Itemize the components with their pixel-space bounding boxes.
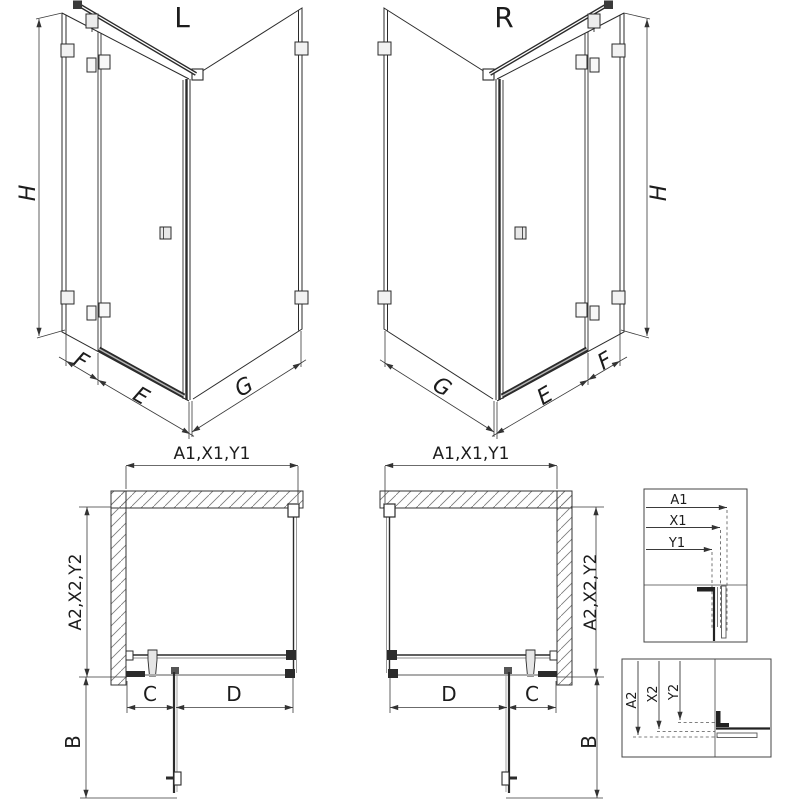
detail-y1-label: Y1 [668,536,685,551]
plan-left-depth-label: A2,X2,Y2 [66,554,86,631]
plan-left-side-wall [111,491,126,685]
plan-left-door-label: D [226,682,241,706]
plan-left-width-label: A1,X1,Y1 [174,444,251,464]
dim-label-height-left: H [16,185,41,202]
variant-label-right: R [494,1,513,34]
detail-a1-label: A1 [670,493,687,508]
plan-right-projection-label: B [577,735,601,749]
plan-left-fixed-label: C [143,682,157,706]
plan-right-top-wall [380,491,572,508]
dim-label-fixed-right: F [594,347,618,375]
drawing-canvas: L H F E G R H F E G A1,X1,Y1 A2,X2,Y2 C … [0,0,800,800]
plan-left-top-wall [111,491,303,508]
plan-right-side-wall [557,491,572,685]
dim-label-fixed-left: F [69,347,93,375]
variant-label-left: L [174,1,190,34]
wall-sections [111,491,572,685]
shower-enclosure-technical-drawing: L H F E G R H F E G A1,X1,Y1 A2,X2,Y2 C … [0,0,800,800]
dim-label-side-left: G [231,372,258,402]
plan-right-depth-label: A2,X2,Y2 [581,554,601,631]
detail-x2-label: X2 [646,685,661,702]
detail-box-depth [622,659,771,757]
plan-left-projection-label: B [61,735,85,749]
dim-label-door-left: E [128,382,153,411]
dim-label-height-right: H [647,185,672,202]
dim-label-door-right: E [533,382,558,411]
dim-label-side-right: G [428,372,455,402]
detail-box-width [644,489,747,642]
detail-a2-label: A2 [625,691,640,708]
detail-x1-label: X1 [669,514,686,529]
detail-y2-label: Y2 [667,684,682,701]
plan-right-fixed-label: C [525,682,539,706]
plan-right-width-label: A1,X1,Y1 [433,444,510,464]
plan-right-door-label: D [441,682,456,706]
